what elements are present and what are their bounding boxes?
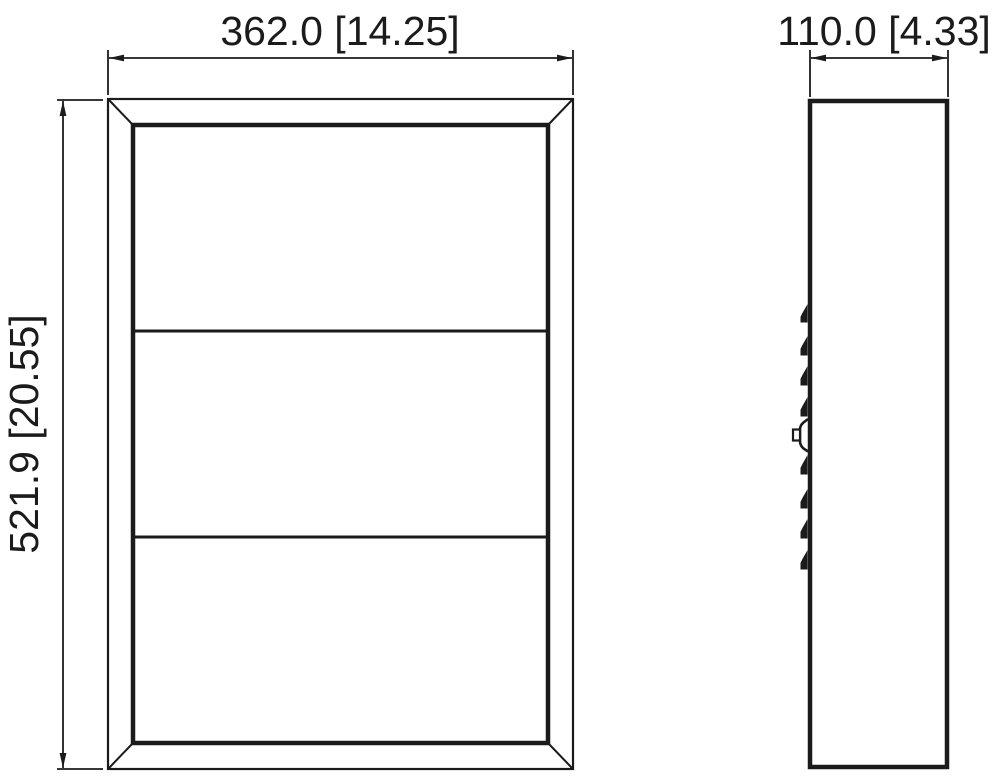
- hinge-tab-2: [801, 338, 807, 355]
- side-view: [793, 101, 947, 767]
- width-arrow-left: [109, 55, 124, 62]
- hinge-tab-1: [801, 306, 807, 322]
- hinge-tab-7: [801, 521, 807, 538]
- front-inner-frame: [133, 125, 548, 743]
- mitre-bottom-left: [109, 743, 133, 768]
- hinge-tabs: [801, 306, 807, 569]
- hinge-tab-6: [801, 491, 807, 508]
- front-outer-frame: [108, 99, 573, 769]
- latch-knob: [793, 430, 800, 441]
- width-dimension-text: 362.0 [14.25]: [220, 8, 459, 54]
- mitre-top-right: [548, 100, 572, 125]
- height-dimension-text: 521.9 [20.55]: [1, 314, 47, 553]
- height-arrow-top: [60, 101, 67, 116]
- width-dimension: 362.0 [14.25]: [108, 8, 573, 95]
- cabinet-dimension-drawing: 362.0 [14.25] 521.9 [20.55]: [0, 0, 1000, 780]
- hinge-tab-8: [801, 552, 807, 569]
- latch-body: [800, 419, 808, 452]
- hinge-tab-4: [801, 399, 807, 416]
- width-arrow-right: [557, 55, 572, 62]
- height-dimension: 521.9 [20.55]: [1, 100, 103, 769]
- height-arrow-bottom: [60, 753, 67, 768]
- mitre-bottom-right: [548, 743, 572, 768]
- hinge-tab-3: [801, 368, 807, 385]
- front-view: [108, 99, 573, 769]
- side-body: [810, 101, 947, 767]
- technical-drawing-page: 362.0 [14.25] 521.9 [20.55]: [0, 0, 1000, 780]
- depth-dimension: 110.0 [4.33]: [777, 8, 991, 97]
- latch-profile: [793, 419, 808, 452]
- mitre-top-left: [109, 100, 133, 125]
- depth-dimension-text: 110.0 [4.33]: [777, 8, 991, 54]
- hinge-tab-5: [801, 457, 807, 474]
- depth-arrow-left: [811, 55, 826, 62]
- depth-arrow-right: [932, 55, 947, 62]
